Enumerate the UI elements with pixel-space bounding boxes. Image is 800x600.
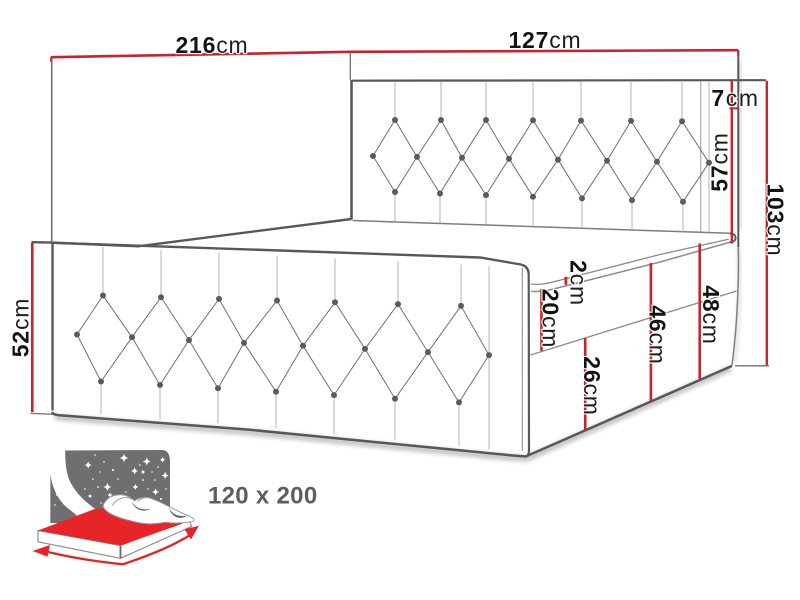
svg-text:26cm: 26cm — [579, 356, 605, 415]
svg-text:2cm: 2cm — [566, 260, 592, 306]
svg-text:52cm: 52cm — [8, 298, 34, 357]
svg-text:7cm: 7cm — [711, 85, 759, 111]
svg-text:57cm: 57cm — [707, 132, 733, 191]
svg-text:46cm: 46cm — [645, 305, 671, 364]
svg-text:127cm: 127cm — [508, 27, 581, 53]
svg-text:120 x 200: 120 x 200 — [208, 483, 317, 510]
svg-text:103cm: 103cm — [763, 183, 789, 256]
svg-text:216cm: 216cm — [175, 32, 248, 58]
svg-text:48cm: 48cm — [698, 285, 724, 344]
svg-text:20cm: 20cm — [538, 289, 564, 348]
